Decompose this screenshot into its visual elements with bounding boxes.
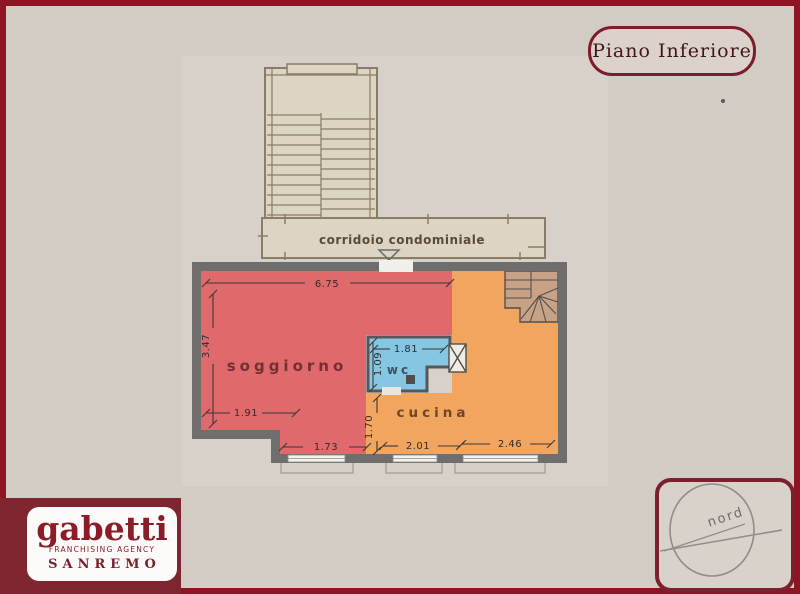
north-compass-icon: nord <box>659 482 791 588</box>
north-compass: nord <box>655 478 795 592</box>
gabetti-tagline: FRANCHISING AGENCY <box>49 545 155 554</box>
room-label-wc: wc <box>387 363 411 377</box>
dim-soggiorno-width: 6.75 <box>315 279 339 290</box>
piano-inferiore-label-box: Piano Inferiore <box>588 26 756 76</box>
gabetti-logo-card: gabetti FRANCHISING AGENCY SANREMO <box>27 507 177 581</box>
room-label-cucina: cucina <box>397 405 470 421</box>
north-label: nord <box>706 505 746 531</box>
gabetti-city: SANREMO <box>48 557 161 572</box>
dim-soggiorno-inner: 1.91 <box>234 408 258 419</box>
gabetti-logo: gabetti FRANCHISING AGENCY SANREMO <box>0 498 181 594</box>
entrance-door-gap <box>379 260 413 272</box>
condo-staircase <box>265 64 377 218</box>
floorplan-page: corridoio condominiale <box>0 0 800 594</box>
piano-inferiore-label: Piano Inferiore <box>592 40 752 62</box>
corridor: corridoio condominiale <box>258 214 545 260</box>
shaft <box>449 344 466 372</box>
dim-wc-width: 1.81 <box>394 344 418 355</box>
room-label-soggiorno: soggiorno <box>227 357 348 375</box>
wc-door-gap <box>382 387 401 395</box>
dim-soggiorno-height: 3.47 <box>201 334 212 358</box>
windows <box>288 455 538 462</box>
corridor-label: corridoio condominiale <box>319 233 485 247</box>
window-sills <box>281 462 545 473</box>
gabetti-brand: gabetti <box>36 514 168 544</box>
scan-speck <box>721 99 725 103</box>
dim-cucina-left-height: 1.70 <box>364 415 375 439</box>
dim-cucina-bottom-left: 2.01 <box>406 441 430 452</box>
dim-wc-height: 1.09 <box>373 352 384 376</box>
dim-soggiorno-bottom: 1.73 <box>314 442 338 453</box>
dim-cucina-bottom-right: 2.46 <box>498 439 522 450</box>
